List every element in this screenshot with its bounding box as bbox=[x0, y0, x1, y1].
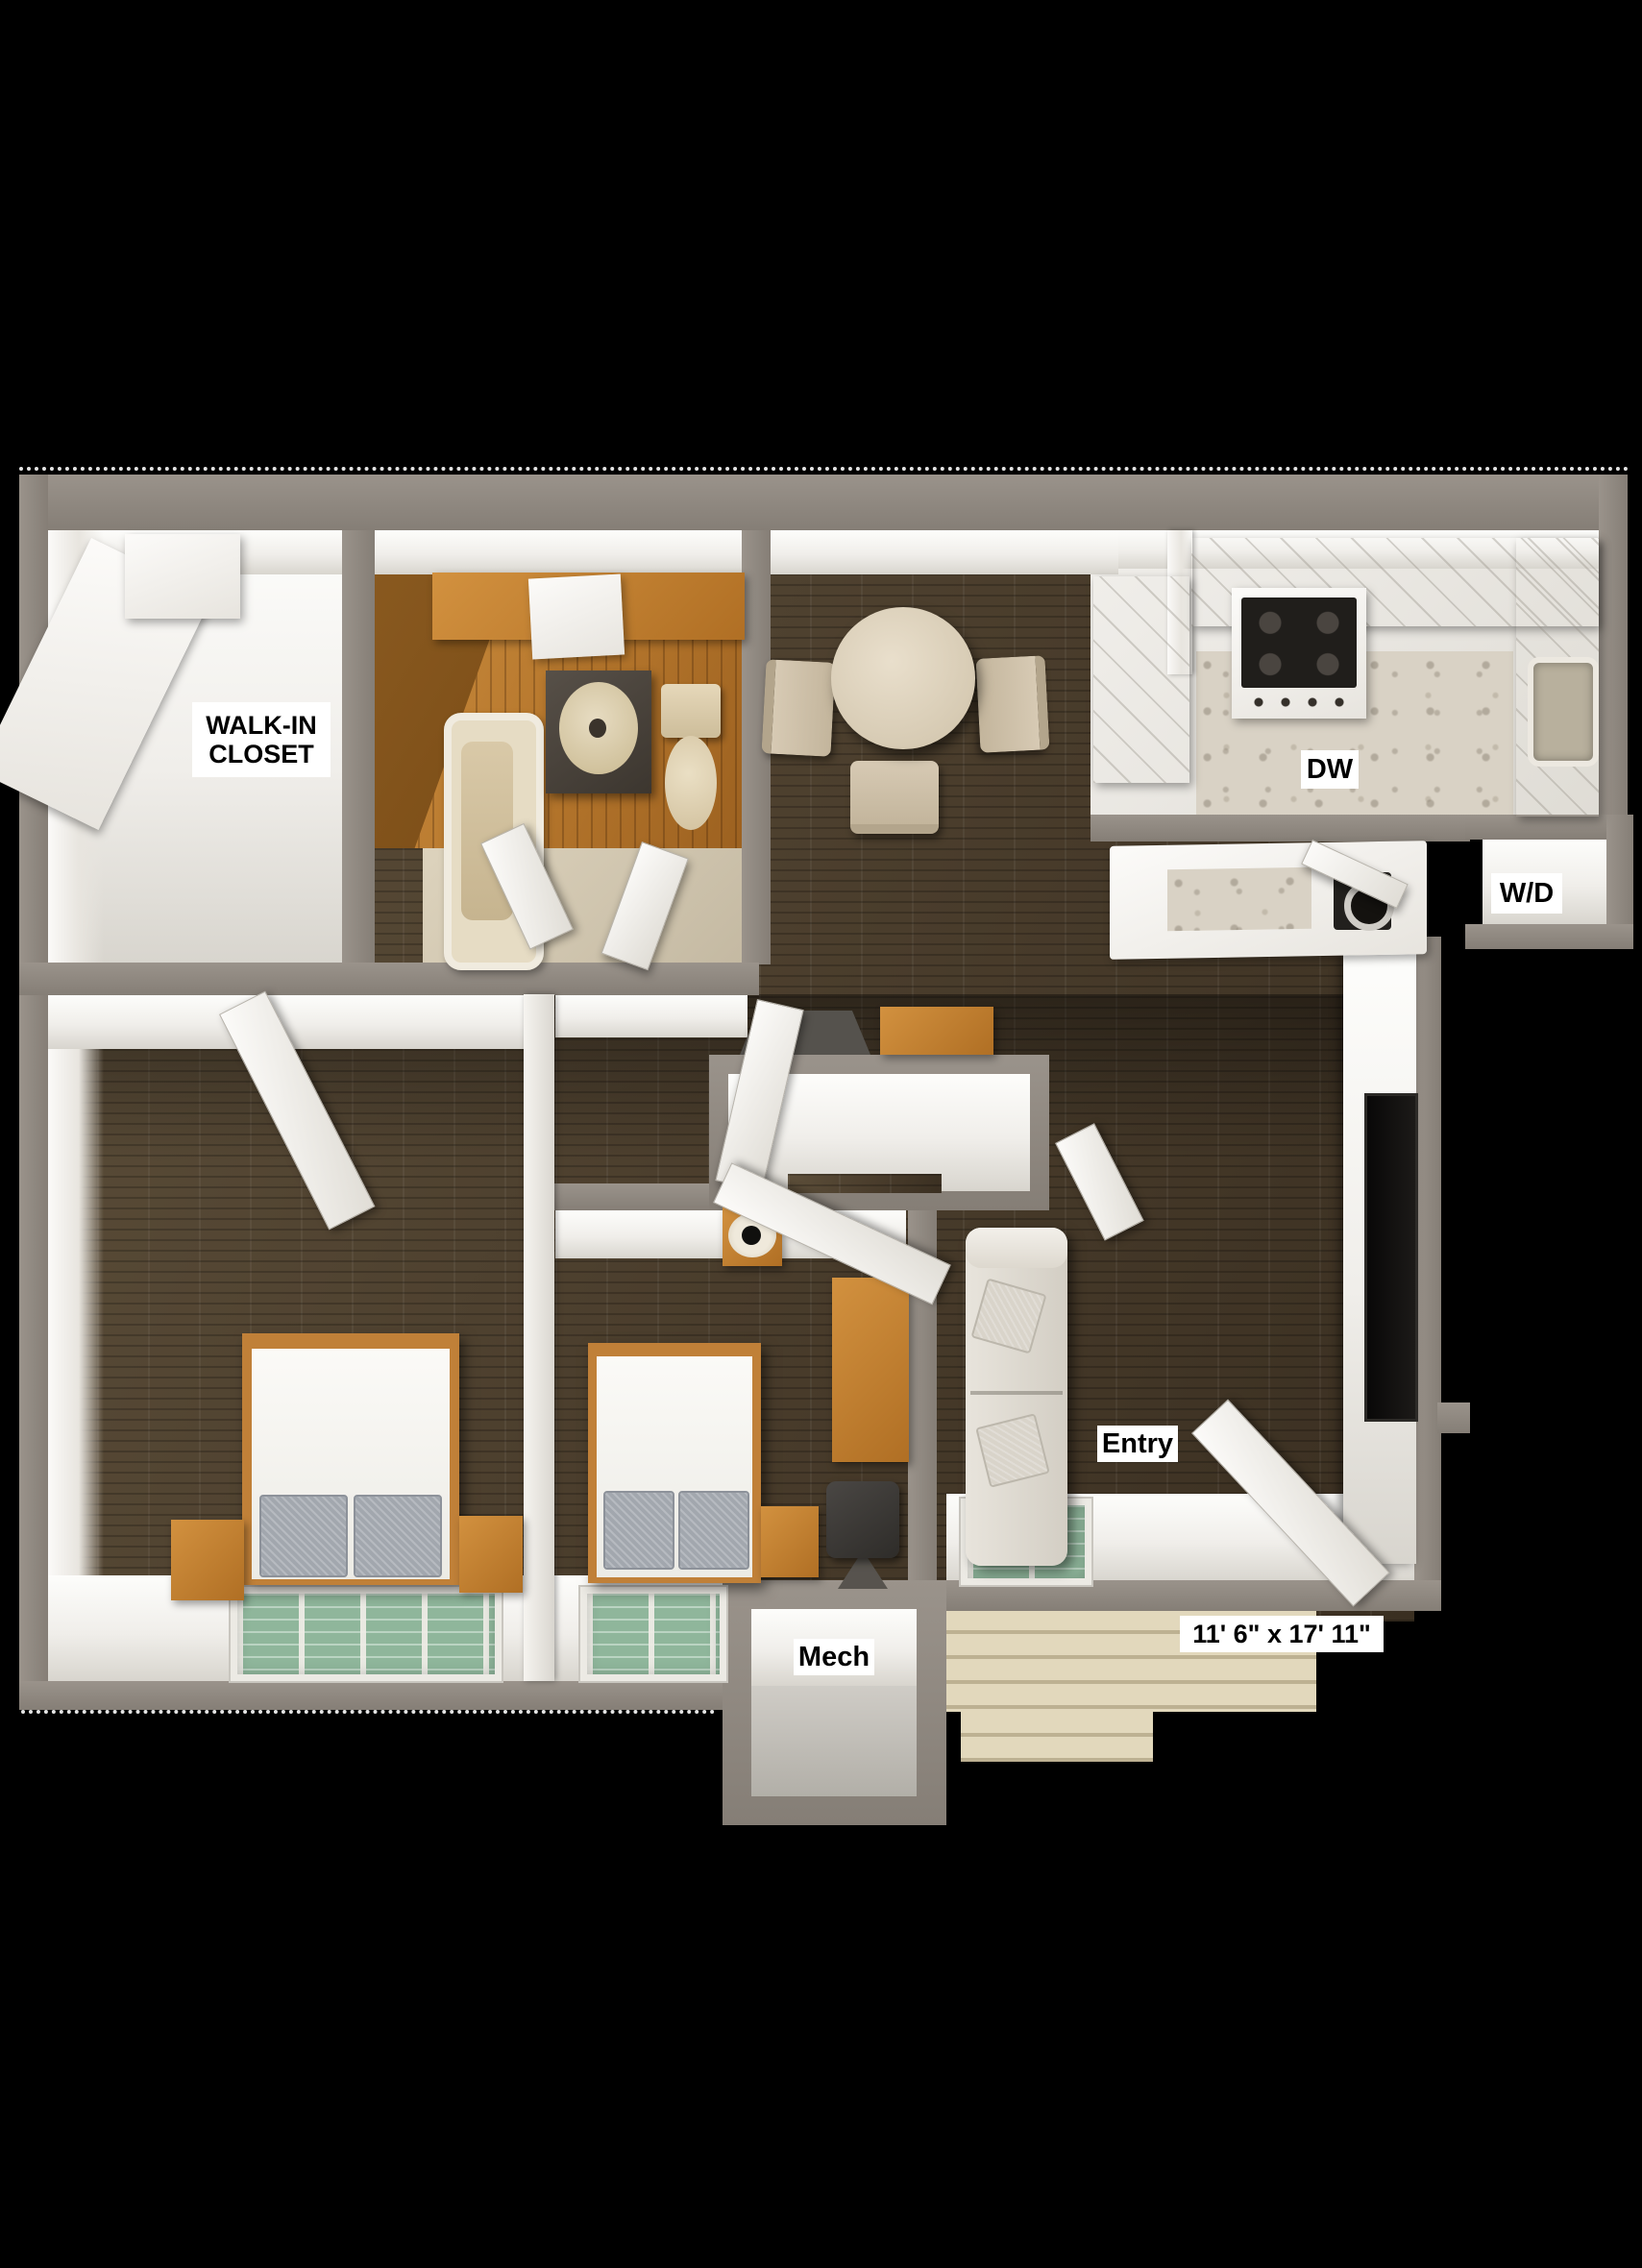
closet-bath-wall bbox=[342, 530, 375, 964]
sofa-armrest bbox=[966, 1228, 1067, 1268]
desk bbox=[832, 1278, 909, 1462]
hall-top-wall-face bbox=[555, 995, 747, 1037]
closet-shelf bbox=[125, 534, 240, 619]
top-dotted-line bbox=[19, 467, 1630, 471]
stove-grate bbox=[1241, 597, 1357, 688]
bedroom2-top-wall bbox=[552, 1183, 718, 1210]
bedroom1-window bbox=[231, 1587, 502, 1681]
room-dimensions-label: 11' 6" x 17' 11" bbox=[1180, 1616, 1384, 1652]
toilet-bowl bbox=[665, 736, 717, 830]
mech-closet-floor bbox=[751, 1686, 917, 1796]
right-wall-living bbox=[1414, 937, 1441, 1609]
mech-label: Mech bbox=[794, 1639, 874, 1675]
bedroom2-window bbox=[580, 1587, 726, 1681]
bed2-pillow-left bbox=[603, 1491, 674, 1570]
hall-dresser bbox=[880, 1007, 993, 1055]
bed1-nightstand-right bbox=[459, 1516, 523, 1593]
walk-in-closet-label-line2: CLOSET bbox=[208, 740, 314, 768]
dining-chair-bottom bbox=[850, 761, 939, 834]
bed1-nightstand-left bbox=[171, 1520, 244, 1600]
kitchen-left-counter bbox=[1093, 576, 1189, 783]
sofa-cushion-seam bbox=[970, 1391, 1063, 1395]
bed2-nightstand bbox=[761, 1506, 819, 1577]
kitchen-bottom-wall bbox=[1091, 815, 1470, 841]
floor-plan-canvas: WALK-IN CLOSET DW W/D Entry Mech 11' 6" … bbox=[0, 0, 1642, 2268]
entry-label: Entry bbox=[1097, 1426, 1178, 1462]
stove-knobs bbox=[1245, 695, 1353, 709]
sofa bbox=[966, 1228, 1067, 1566]
entry-porch-step bbox=[961, 1712, 1153, 1762]
dishwasher-label: DW bbox=[1301, 750, 1359, 789]
breakfast-bar-top bbox=[1167, 867, 1311, 932]
bottom-wall-bedrooms bbox=[19, 1681, 735, 1710]
bottom-dotted-line bbox=[21, 1710, 715, 1714]
bed1-pillow-left bbox=[259, 1495, 348, 1577]
wd-closet-bottom-wall bbox=[1465, 924, 1633, 949]
walk-in-closet-label: WALK-IN CLOSET bbox=[192, 702, 331, 777]
bed1-pillow-right bbox=[354, 1495, 442, 1577]
dining-chair-left bbox=[761, 659, 835, 757]
bed2-pillow-right bbox=[678, 1491, 749, 1570]
side-table-bowl bbox=[742, 1226, 761, 1245]
walk-in-closet-label-line1: WALK-IN bbox=[206, 711, 316, 740]
top-wall bbox=[19, 475, 1628, 530]
office-chair bbox=[826, 1481, 899, 1558]
tv bbox=[1364, 1093, 1418, 1422]
bedroom-divider-wall bbox=[524, 994, 554, 1681]
kitchen-sink bbox=[1528, 657, 1599, 767]
vanity-basin-drain bbox=[589, 719, 606, 738]
dining-table bbox=[831, 607, 975, 749]
bathroom-sink bbox=[528, 574, 625, 660]
washer-dryer-label: W/D bbox=[1491, 873, 1562, 914]
dining-chair-right bbox=[975, 655, 1049, 753]
right-wall-kitchen bbox=[1599, 475, 1628, 820]
hall-closet-opening bbox=[788, 1174, 942, 1193]
toilet-tank bbox=[661, 684, 721, 738]
right-wall-notch bbox=[1437, 1402, 1470, 1433]
